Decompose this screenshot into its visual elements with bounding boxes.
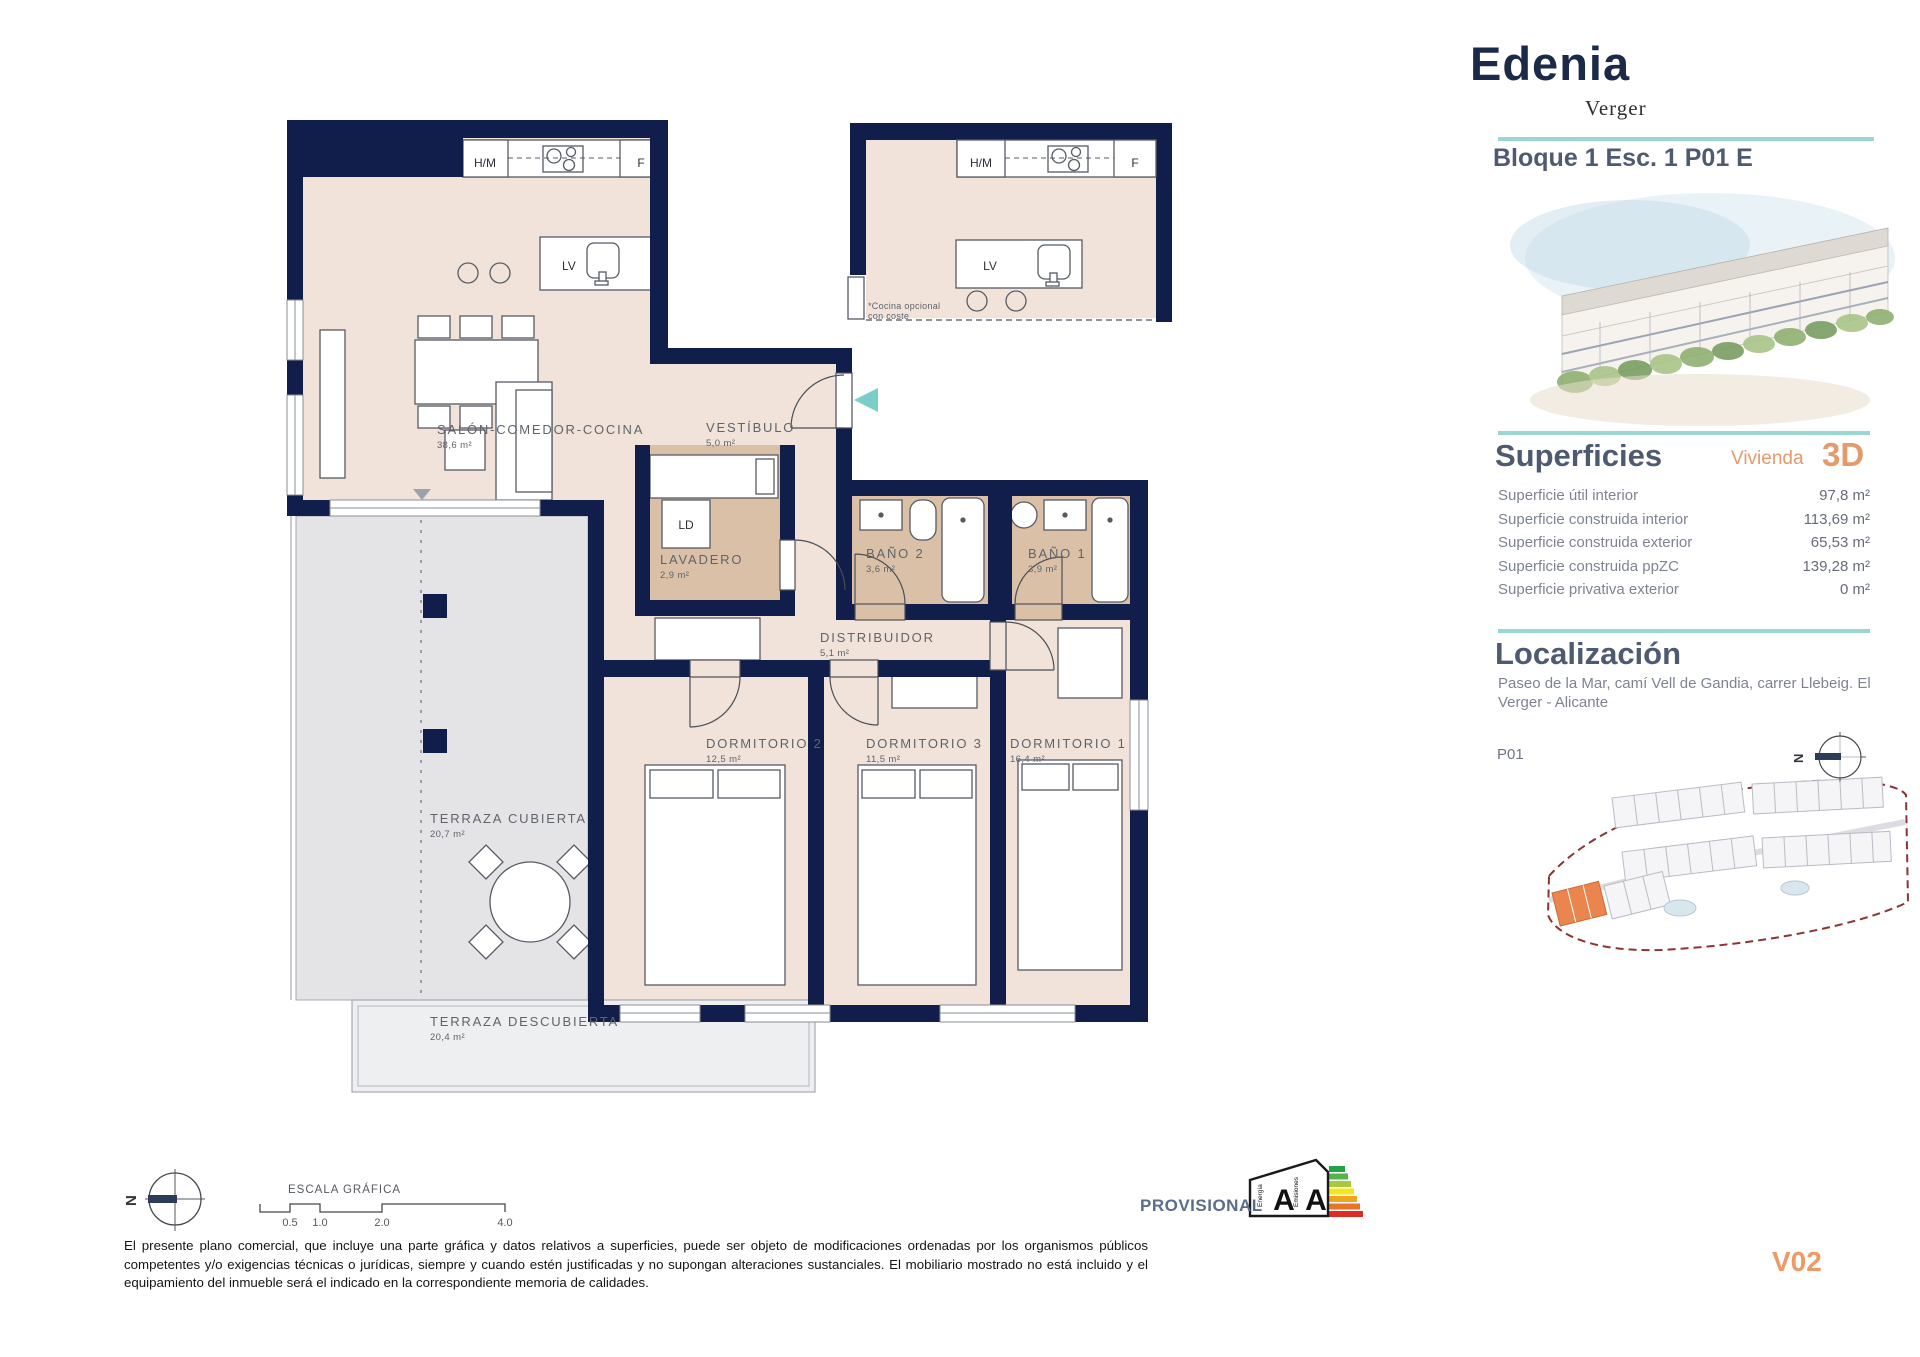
surface-value: 113,69 m² xyxy=(1804,511,1870,528)
inset-dishwasher-label: LV xyxy=(983,259,997,273)
room-label-bano1: BAÑO 1 xyxy=(1028,546,1086,561)
terrace-pillar xyxy=(423,729,447,753)
energy-rating-icon: Energía A Emisiones A xyxy=(1250,1160,1363,1217)
surface-label: Superficie privativa exterior xyxy=(1498,581,1679,598)
floor-label: P01 xyxy=(1497,746,1524,763)
table-row: Superficie privativa exterior 0 m² xyxy=(1498,578,1870,602)
oven-label: H/M xyxy=(474,156,496,170)
table-row: Superficie útil interior 97,8 m² xyxy=(1498,484,1870,508)
address: Paseo de la Mar, camí Vell de Gandia, ca… xyxy=(1498,674,1890,712)
provisional-label: PROVISIONAL xyxy=(1140,1196,1263,1216)
bed-dorm3 xyxy=(858,765,976,985)
vivienda-label: Vivienda xyxy=(1731,448,1804,470)
kitchen-note-line2: con coste xyxy=(868,311,909,321)
plan-sheet: *Cocina opcional con coste H/M F LV SALÓ… xyxy=(0,0,1920,1357)
scale-tick-0: 0.5 xyxy=(282,1217,297,1229)
surface-value: 0 m² xyxy=(1840,581,1870,598)
room-area-dorm1: 16,4 m² xyxy=(1010,754,1045,765)
room-label-vestibulo: VESTÍBULO xyxy=(706,420,795,435)
surface-label: Superficie útil interior xyxy=(1498,487,1638,504)
room-label-bano2: BAÑO 2 xyxy=(866,546,924,561)
site-plan: N xyxy=(1548,732,1908,950)
room-label-distribuidor: DISTRIBUIDOR xyxy=(820,630,935,645)
bed-dorm2 xyxy=(645,765,785,985)
room-area-lavadero: 2,9 m² xyxy=(660,570,689,581)
divider xyxy=(1498,431,1870,435)
surface-label: Superficie construida interior xyxy=(1498,511,1688,528)
room-label-dorm3: DORMITORIO 3 xyxy=(866,736,983,751)
room-area-distribuidor: 5,1 m² xyxy=(820,648,849,659)
brand-subtitle: Verger xyxy=(1585,96,1647,121)
divider xyxy=(1498,629,1870,633)
table-row: Superficie construida exterior 65,53 m² xyxy=(1498,531,1870,555)
highlighted-unit xyxy=(1552,881,1607,926)
divider xyxy=(1498,137,1874,141)
room-area-salon: 38,6 m² xyxy=(437,440,472,451)
table-row: Superficie construida interior 113,69 m² xyxy=(1498,508,1870,532)
scale-tick-2: 2.0 xyxy=(374,1217,389,1229)
surface-label: Superficie construida ppZC xyxy=(1498,558,1679,575)
room-label-terraza-descubierta: TERRAZA DESCUBIERTA xyxy=(430,1014,619,1029)
room-area-dorm2: 12,5 m² xyxy=(706,754,741,765)
room-area-dorm3: 11,5 m² xyxy=(866,754,900,765)
localizacion-title: Localización xyxy=(1495,636,1681,672)
version-label: V02 xyxy=(1772,1246,1822,1278)
type-code: 3D xyxy=(1822,436,1864,474)
surface-value: 65,53 m² xyxy=(1811,534,1870,551)
superficies-table: Superficie útil interior 97,8 m² Superfi… xyxy=(1498,484,1870,602)
room-area-bano2: 3,6 m² xyxy=(866,564,895,575)
inset-oven-label: H/M xyxy=(970,156,992,170)
scale-tick-1: 1.0 xyxy=(312,1217,327,1229)
kitchen-note-line1: *Cocina opcional xyxy=(868,301,940,311)
room-label-dorm1: DORMITORIO 1 xyxy=(1010,736,1127,751)
inset-fridge-label: F xyxy=(1131,156,1138,170)
scale-bar: ESCALA GRÁFICA 0.5 1.0 2.0 4.0 xyxy=(260,1183,513,1229)
energy-rating-energy: A xyxy=(1273,1184,1295,1217)
energy-rating-emissions: A xyxy=(1305,1184,1327,1217)
superficies-title: Superficies xyxy=(1495,438,1662,474)
site-compass-icon: N xyxy=(1791,732,1866,782)
scale-tick-3: 4.0 xyxy=(497,1217,512,1229)
room-area-terraza-cubierta: 20,7 m² xyxy=(430,829,465,840)
washer-label: LD xyxy=(678,518,694,532)
table-row: Superficie construida ppZC 139,28 m² xyxy=(1498,555,1870,579)
room-label-lavadero: LAVADERO xyxy=(660,552,743,567)
scale-bar-title: ESCALA GRÁFICA xyxy=(288,1183,401,1196)
brand-title: Edenia xyxy=(1470,36,1630,91)
disclaimer: El presente plano comercial, que incluye… xyxy=(124,1237,1148,1293)
bed-dorm1 xyxy=(1018,760,1122,970)
fridge-label: F xyxy=(637,156,644,170)
unit-title: Bloque 1 Esc. 1 P01 E xyxy=(1493,144,1753,173)
building-render xyxy=(1510,193,1895,426)
energy-axis-emissions: Emisiones xyxy=(1293,1176,1300,1207)
room-label-salon: SALÓN-COMEDOR-COCINA xyxy=(437,422,644,437)
room-area-terraza-descubierta: 20,4 m² xyxy=(430,1032,465,1043)
surface-value: 97,8 m² xyxy=(1819,487,1870,504)
room-label-terraza-cubierta: TERRAZA CUBIERTA xyxy=(430,811,587,826)
room-area-vestibulo: 5,0 m² xyxy=(706,438,735,449)
optional-kitchen-inset: *Cocina opcional con coste H/M F LV xyxy=(848,123,1172,322)
surface-value: 139,28 m² xyxy=(1802,558,1870,575)
site-compass-north-label: N xyxy=(1791,754,1806,763)
room-area-bano1: 3,9 m² xyxy=(1028,564,1057,575)
entry-arrow-icon xyxy=(854,388,878,412)
compass-north-label: N xyxy=(123,1195,140,1206)
surface-label: Superficie construida exterior xyxy=(1498,534,1692,551)
dishwasher-label: LV xyxy=(562,259,576,273)
compass-icon: N xyxy=(123,1169,205,1231)
room-label-dorm2: DORMITORIO 2 xyxy=(706,736,823,751)
terrace-pillar xyxy=(423,594,447,618)
